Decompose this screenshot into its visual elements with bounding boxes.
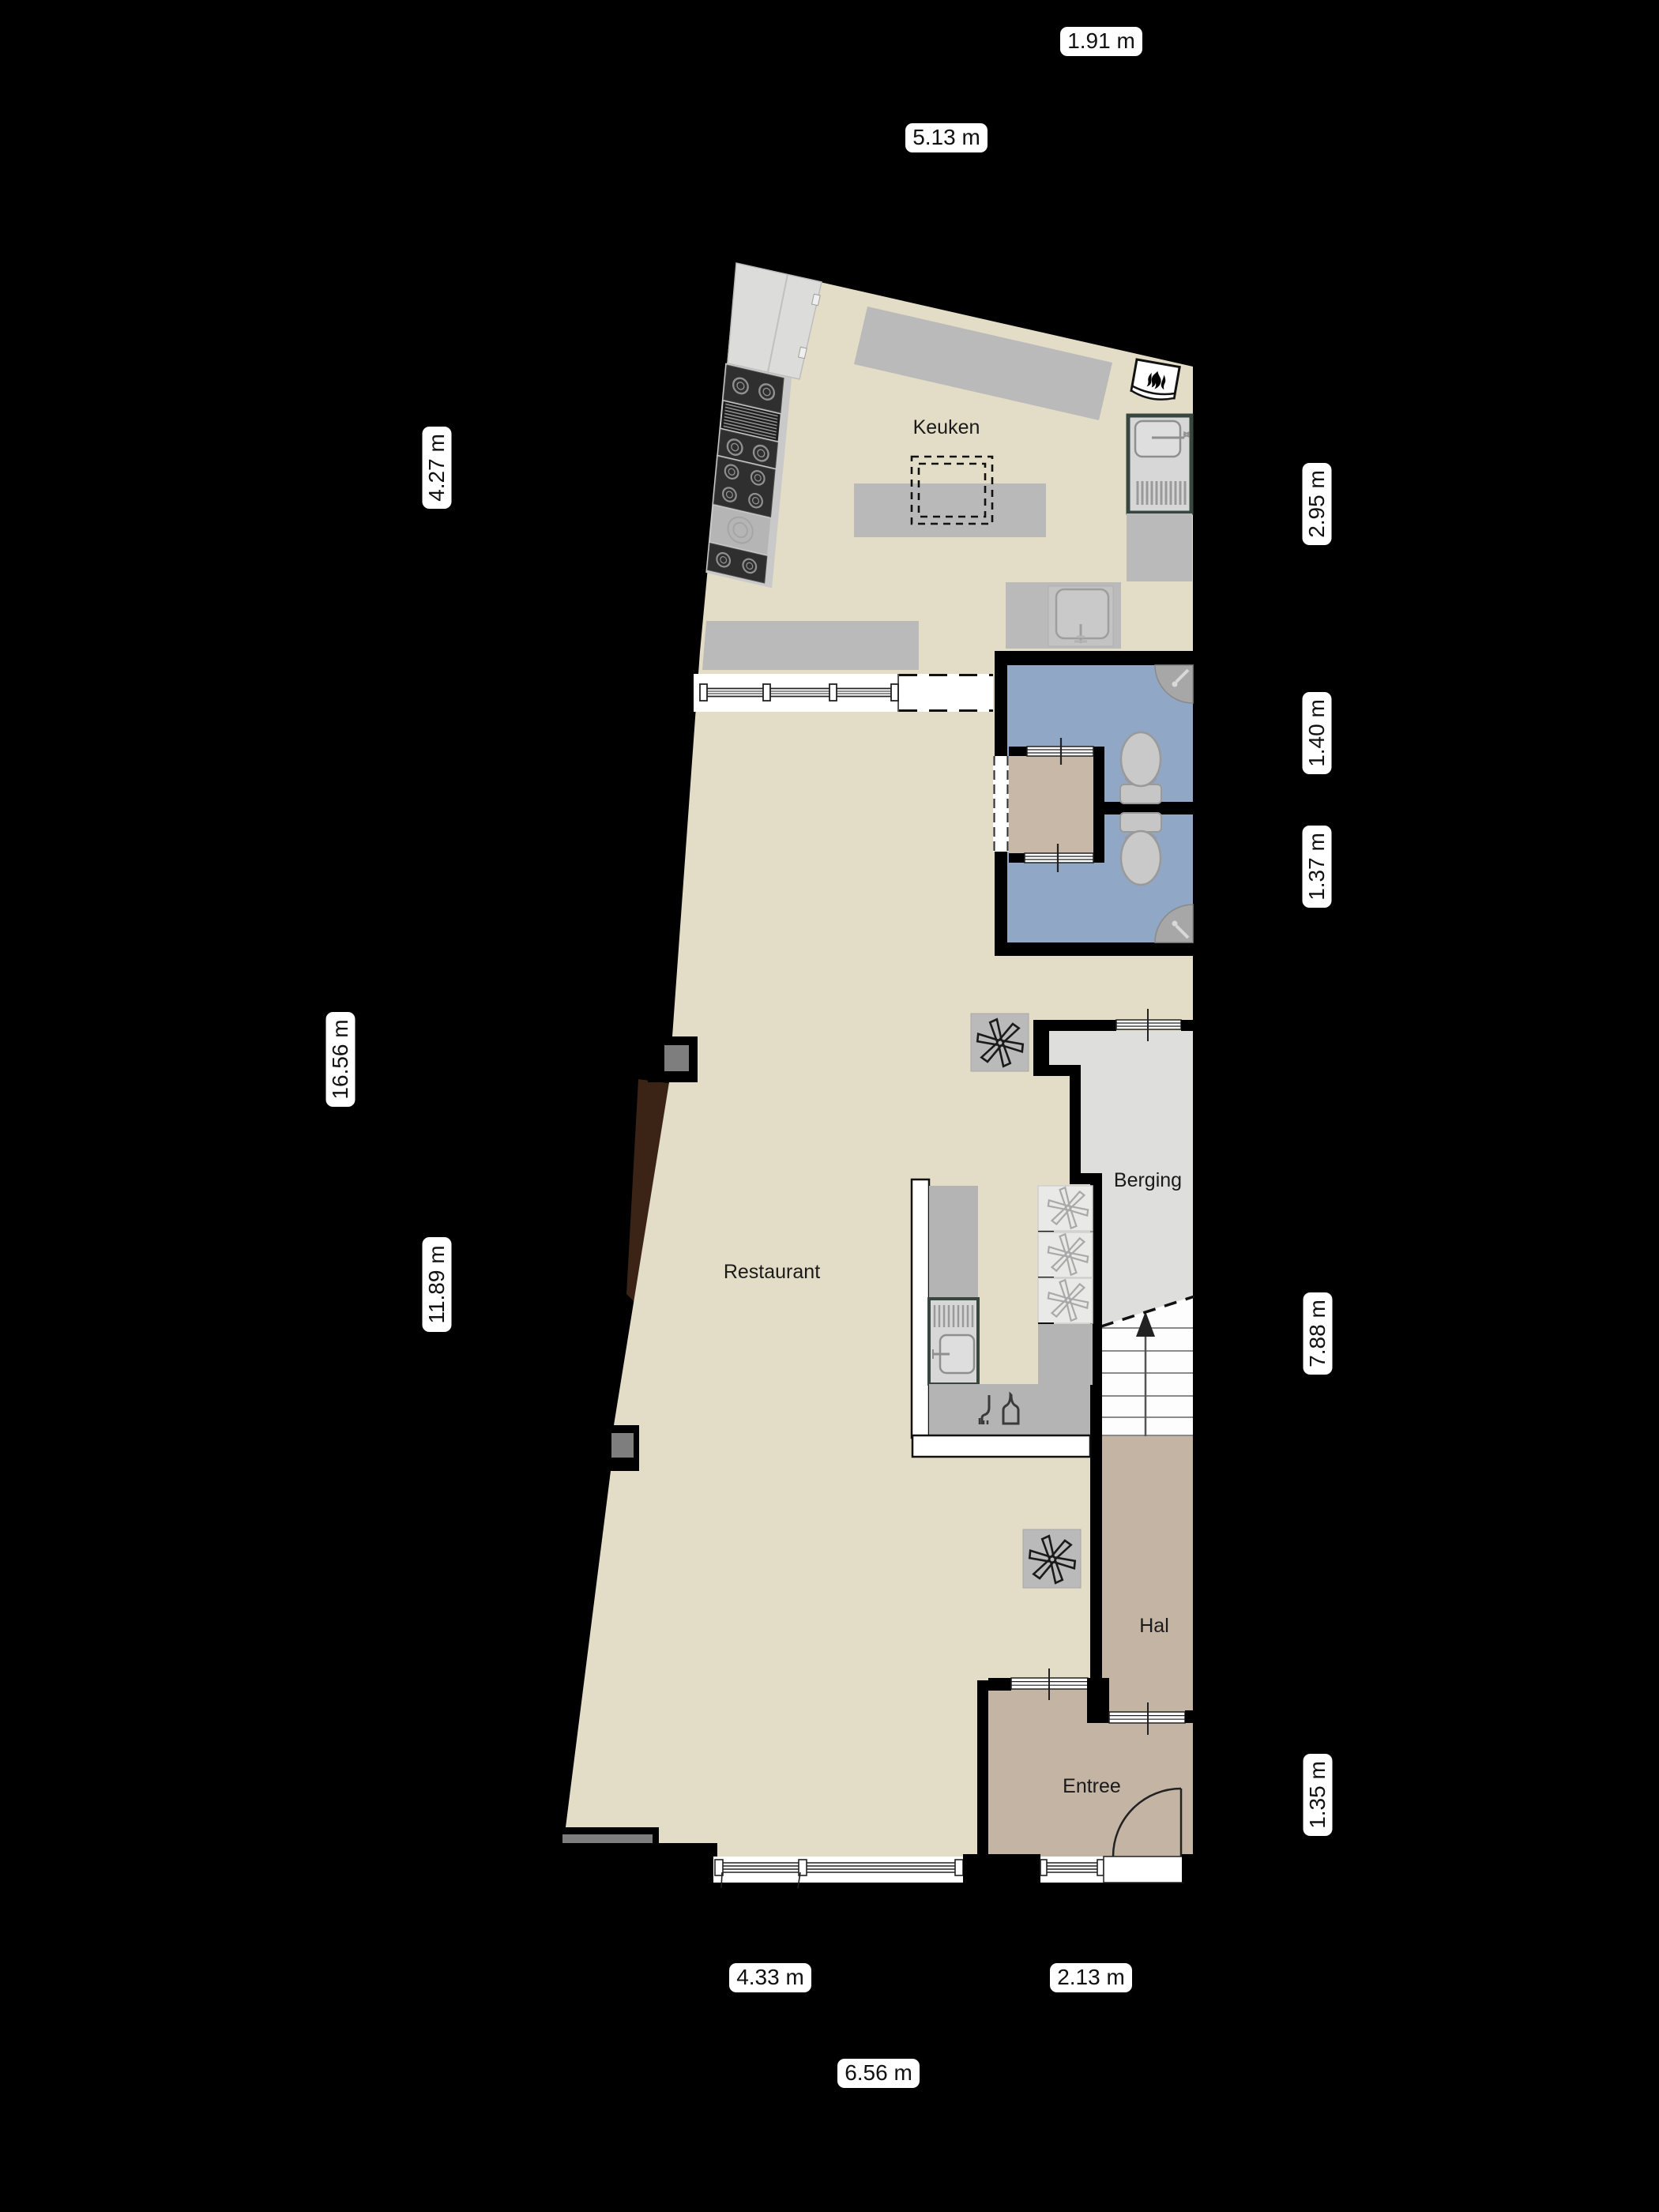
svg-text:7.88 m: 7.88 m: [1305, 1300, 1330, 1367]
svg-text:Hal: Hal: [1139, 1615, 1169, 1637]
svg-text:1.35 m: 1.35 m: [1305, 1761, 1330, 1829]
svg-text:6.56 m: 6.56 m: [845, 2060, 912, 2085]
svg-text:2.95 m: 2.95 m: [1304, 470, 1329, 538]
svg-text:4.33 m: 4.33 m: [736, 1965, 804, 1989]
svg-text:16.56 m: 16.56 m: [328, 1019, 352, 1099]
svg-text:Entree: Entree: [1063, 1775, 1121, 1797]
svg-text:5.13 m: 5.13 m: [912, 125, 980, 149]
svg-text:Restaurant: Restaurant: [724, 1261, 820, 1283]
svg-text:Berging: Berging: [1114, 1169, 1182, 1191]
svg-text:Keuken: Keuken: [913, 416, 980, 438]
svg-text:1.91 m: 1.91 m: [1067, 28, 1135, 53]
svg-text:1.37 m: 1.37 m: [1304, 833, 1329, 901]
svg-text:2.13 m: 2.13 m: [1057, 1965, 1125, 1989]
svg-text:11.89 m: 11.89 m: [424, 1245, 449, 1323]
svg-text:4.27 m: 4.27 m: [424, 434, 449, 502]
svg-text:1.40 m: 1.40 m: [1304, 699, 1329, 767]
